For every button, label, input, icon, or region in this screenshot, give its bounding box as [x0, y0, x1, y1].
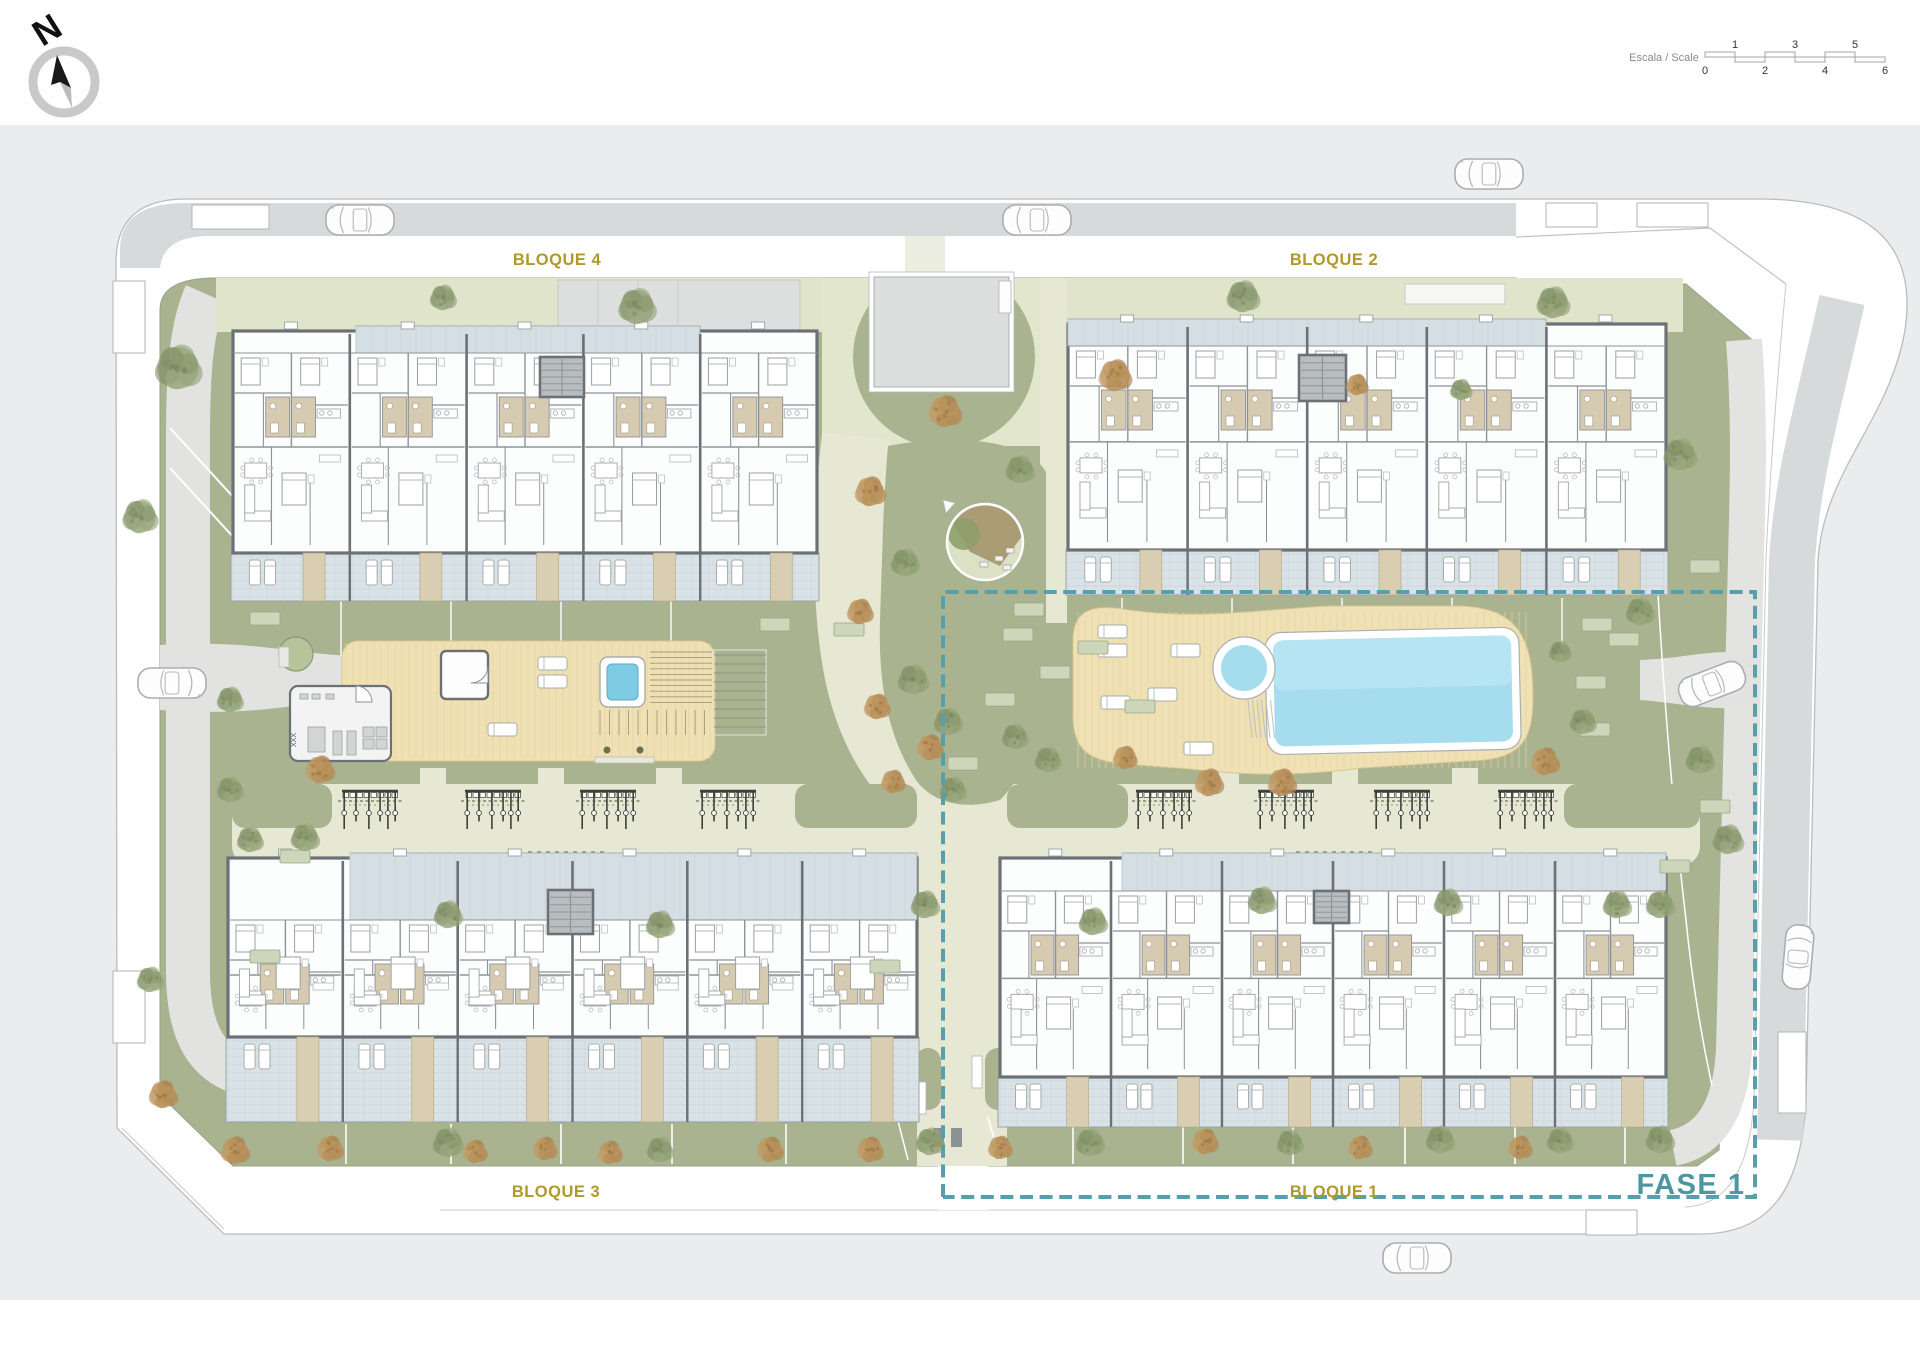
svg-text:BLOQUE 4: BLOQUE 4 — [513, 251, 602, 269]
svg-text:0: 0 — [1702, 65, 1708, 77]
svg-text:4: 4 — [1822, 65, 1828, 77]
svg-text:BLOQUE 2: BLOQUE 2 — [1290, 251, 1378, 269]
svg-text:Escala / Scale: Escala / Scale — [1629, 52, 1699, 64]
svg-text:BLOQUE 1: BLOQUE 1 — [1290, 1183, 1378, 1201]
svg-text:5: 5 — [1852, 39, 1858, 51]
svg-text:XXX: XXX — [291, 733, 298, 747]
svg-text:BLOQUE 3: BLOQUE 3 — [512, 1183, 600, 1201]
svg-text:6: 6 — [1882, 65, 1888, 77]
svg-text:FASE 1: FASE 1 — [1637, 1169, 1746, 1201]
svg-text:2: 2 — [1762, 65, 1768, 77]
svg-text:3: 3 — [1792, 39, 1798, 51]
svg-text:1: 1 — [1732, 39, 1738, 51]
